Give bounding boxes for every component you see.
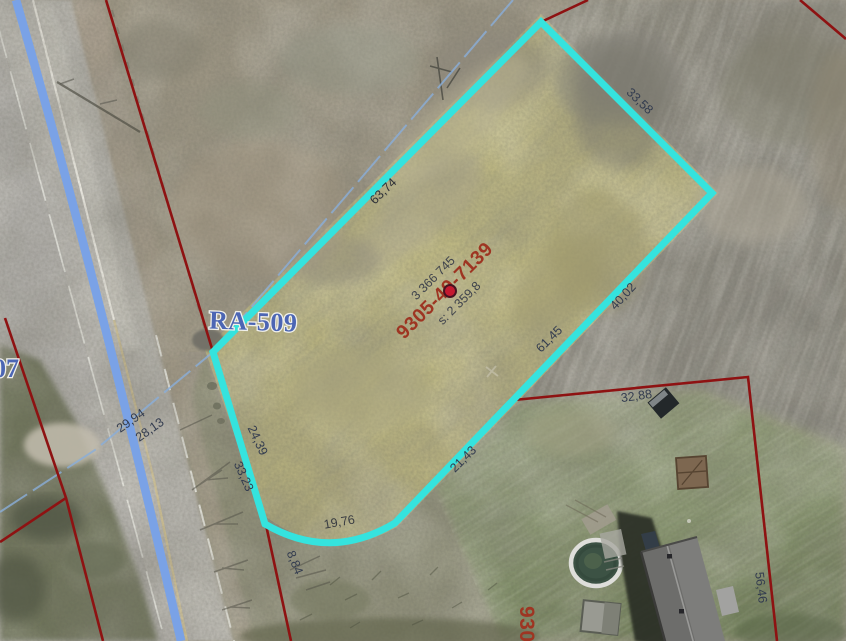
svg-text:RA-509: RA-509 xyxy=(209,305,298,337)
svg-text:07: 07 xyxy=(0,354,19,383)
svg-text:9305: 9305 xyxy=(515,606,538,641)
